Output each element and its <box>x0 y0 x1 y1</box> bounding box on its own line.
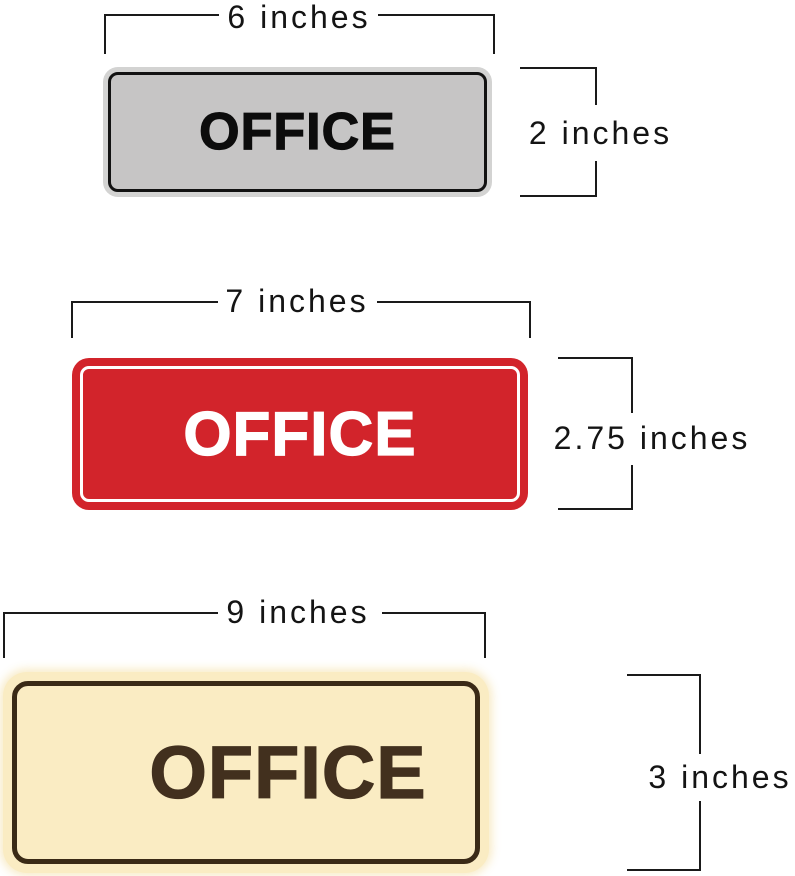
width-label-small: 6 inches <box>214 0 384 34</box>
dimension-line <box>595 67 597 105</box>
dimension-line <box>71 301 218 303</box>
height-label-medium: 2.75 inches <box>542 421 762 455</box>
office-sign-small-face: OFFICE <box>108 72 487 192</box>
dimension-line <box>631 357 633 413</box>
dimension-line <box>71 301 73 338</box>
width-label-medium: 7 inches <box>212 284 382 318</box>
height-label-small: 2 inches <box>518 116 683 150</box>
dimension-line <box>627 674 701 676</box>
dimension-line <box>520 67 597 69</box>
dimension-line <box>3 612 5 658</box>
dimension-line <box>484 612 486 658</box>
dimension-line <box>627 869 701 871</box>
dimension-line <box>382 612 486 614</box>
office-sign-large-face: OFFICE <box>12 681 480 864</box>
product-dimension-diagram: 6 inches OFFICE 2 inches 7 inches OFFICE… <box>0 0 795 876</box>
dimension-line <box>377 301 531 303</box>
office-sign-large: OFFICE <box>3 672 489 873</box>
dimension-line <box>699 674 701 754</box>
office-sign-medium: OFFICE <box>72 358 528 510</box>
dimension-line <box>699 801 701 871</box>
dimension-line <box>104 14 106 54</box>
width-label-large: 9 inches <box>213 595 383 629</box>
dimension-line <box>493 14 495 54</box>
dimension-line <box>3 612 218 614</box>
office-sign-small-text: OFFICE <box>199 102 396 162</box>
dimension-line <box>520 195 597 197</box>
dimension-line <box>631 465 633 510</box>
dimension-line <box>529 301 531 338</box>
dimension-line <box>558 508 633 510</box>
office-sign-small: OFFICE <box>103 67 492 197</box>
dimension-line <box>378 14 495 16</box>
office-sign-large-text: OFFICE <box>149 730 426 815</box>
office-sign-medium-text: OFFICE <box>183 399 416 470</box>
dimension-line <box>104 14 219 16</box>
dimension-line <box>558 357 633 359</box>
height-label-large: 3 inches <box>640 760 795 794</box>
dimension-line <box>595 161 597 197</box>
